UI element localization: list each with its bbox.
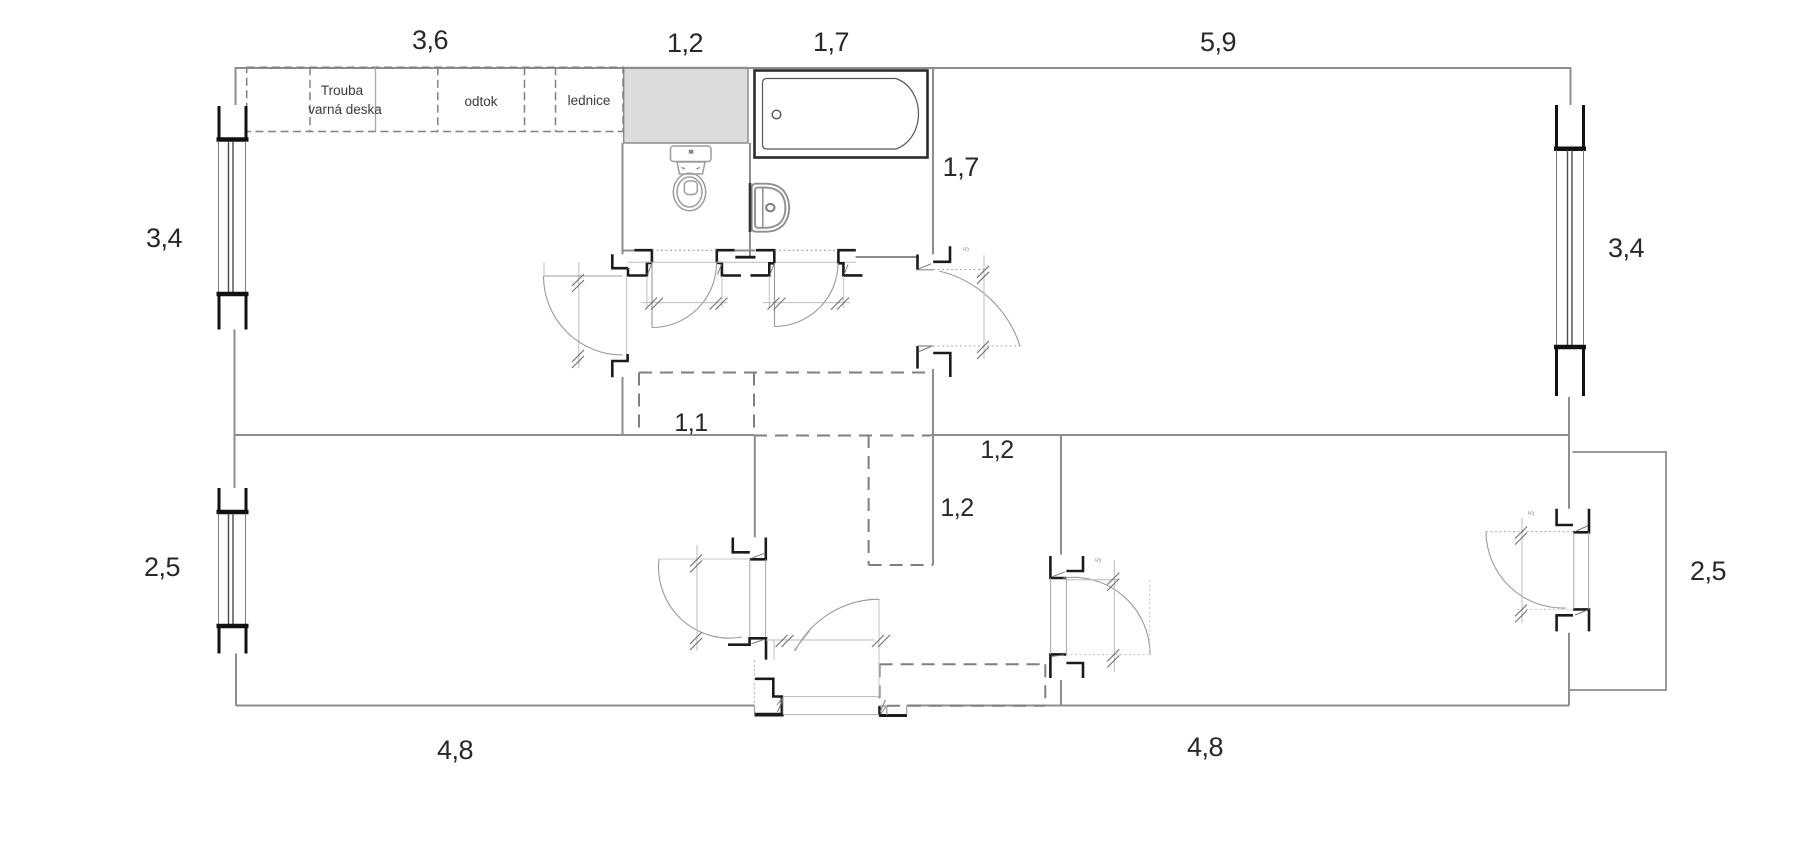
- svg-text:1,2: 1,2: [667, 28, 703, 58]
- svg-text:3,4: 3,4: [146, 223, 183, 253]
- svg-text:lednice: lednice: [568, 93, 611, 108]
- svg-text:4,8: 4,8: [437, 735, 473, 765]
- svg-text:1,2: 1,2: [980, 436, 1013, 464]
- svg-text:1,2: 1,2: [940, 494, 973, 522]
- svg-text:4,8: 4,8: [1187, 732, 1223, 762]
- svg-text:3,4: 3,4: [1608, 233, 1645, 263]
- svg-text:2,5: 2,5: [144, 552, 180, 582]
- svg-text:2,5: 2,5: [1690, 556, 1726, 586]
- svg-text:varná deska: varná deska: [308, 102, 382, 117]
- svg-text:3,6: 3,6: [412, 25, 448, 55]
- svg-text:1,7: 1,7: [943, 152, 979, 182]
- svg-text:odtok: odtok: [464, 94, 497, 109]
- svg-text:5,9: 5,9: [1200, 27, 1236, 57]
- svg-text:5: 5: [1526, 509, 1536, 517]
- svg-text:5: 5: [961, 245, 971, 253]
- svg-text:5: 5: [1093, 556, 1103, 564]
- svg-text:Trouba: Trouba: [321, 83, 364, 98]
- svg-text:1,7: 1,7: [813, 27, 849, 57]
- svg-text:1,1: 1,1: [674, 409, 707, 437]
